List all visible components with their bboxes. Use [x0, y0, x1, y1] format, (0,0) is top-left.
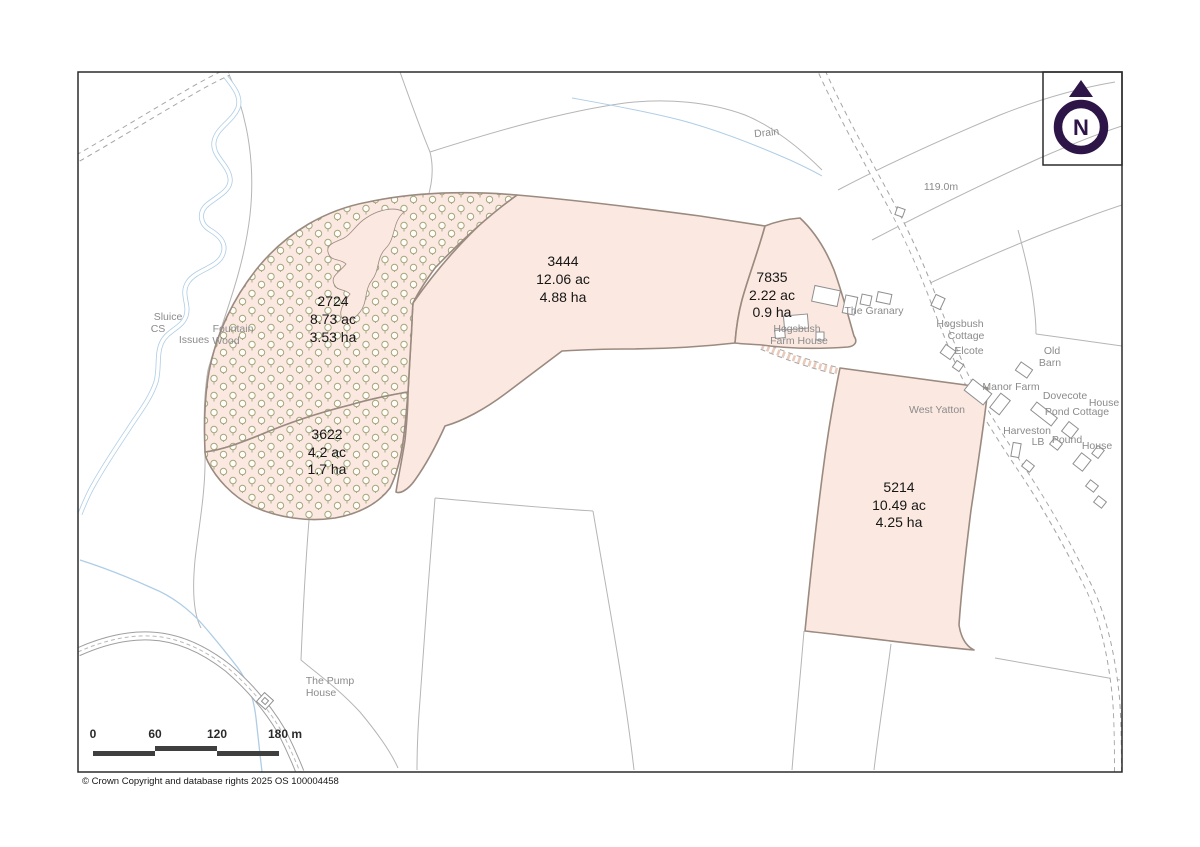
parcel-2724-hectares: 3.53 ha [310, 329, 357, 345]
building [1011, 442, 1021, 457]
parcel-7835-hectares: 0.9 ha [753, 304, 792, 320]
place-label-pound-house: House [1082, 440, 1113, 452]
scale-bar-segment [93, 751, 155, 756]
place-label-pump-house-line2: House [306, 687, 337, 699]
place-label-fountain-wood-line1: Fountain [213, 323, 254, 335]
place-label-dovecote: Dovecote [1043, 390, 1088, 402]
place-label-hogsbush-cottage-line2: Cottage [948, 330, 985, 342]
parcel-3444-acres: 12.06 ac [536, 271, 590, 287]
scale-bar-segment [155, 746, 217, 751]
map-page: Drain 119.0m Sluice CS Issues Fountain W… [0, 0, 1200, 847]
parcel-3622-acres: 4.2 ac [308, 444, 346, 460]
parcel-2724-number: 2724 [317, 293, 348, 309]
place-label-the-granary: The Granary [845, 305, 905, 317]
parcel-3444-hectares: 4.88 ha [540, 289, 587, 305]
place-label-hogsbush-farm-line1: Hogsbush [773, 323, 820, 335]
parcel-2724-acres: 8.73 ac [310, 311, 356, 327]
place-label-fountain-wood-line2: Wood [212, 335, 239, 347]
place-label-hogsbush-cottage-line1: Hogsbush [936, 318, 983, 330]
parcel-7835-acres: 2.22 ac [749, 287, 795, 303]
scale-bar-segment [217, 751, 279, 756]
place-label-pump-house-line1: The Pump [306, 675, 355, 687]
place-label-lb: LB [1032, 436, 1045, 448]
scale-tick-0: 0 [90, 727, 97, 741]
parcel-5214-number: 5214 [883, 479, 914, 495]
place-label-west-yatton: West Yatton [909, 404, 965, 416]
place-label-pond-cottage: Pond Cottage [1045, 406, 1109, 418]
place-label-manor-farm: Manor Farm [982, 381, 1039, 393]
parcel-3444-number: 3444 [547, 253, 578, 269]
parcel-3622-number: 3622 [311, 426, 342, 442]
scale-tick-60: 60 [148, 727, 162, 741]
place-label-old-barn-line2: Barn [1039, 357, 1061, 369]
place-label-sluice: Sluice [154, 311, 183, 323]
building [876, 292, 892, 305]
place-label-old-barn-line1: Old [1044, 345, 1061, 357]
place-label-issues: Issues [179, 334, 209, 346]
parcel-3622-hectares: 1.7 ha [308, 461, 347, 477]
parcel-5214-acres: 10.49 ac [872, 497, 926, 513]
place-label-cs: CS [151, 323, 166, 335]
place-label-hogsbush-farm-line2: Farm House [770, 335, 828, 347]
parcel-7835-number: 7835 [756, 269, 787, 285]
north-letter: N [1073, 115, 1089, 140]
place-label-pound: Pound [1052, 434, 1083, 446]
scale-tick-180m: 180 m [268, 727, 302, 741]
parcel-5214-hectares: 4.25 ha [876, 514, 923, 530]
place-label-spot-height: 119.0m [924, 181, 958, 193]
scale-tick-120: 120 [207, 727, 227, 741]
copyright-text: © Crown Copyright and database rights 20… [82, 776, 339, 787]
place-label-elcote: Elcote [954, 345, 983, 357]
os-land-map: Drain 119.0m Sluice CS Issues Fountain W… [0, 0, 1200, 847]
